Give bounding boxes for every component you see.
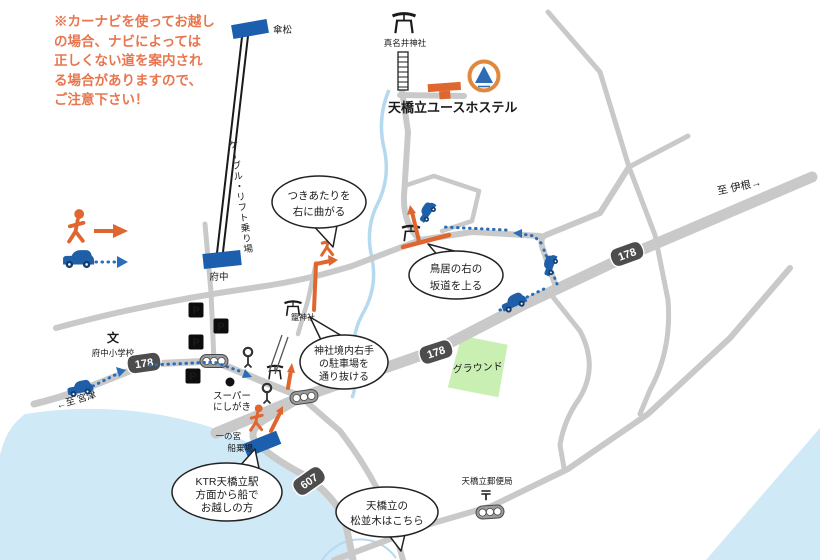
supermarket-label-2: にしがき [213, 401, 251, 413]
hostel-label: 天橋立ユースホステル [388, 100, 517, 115]
to-ine-label: 至 伊根→ [716, 176, 763, 198]
pier-label-2: 船乗場 [227, 443, 253, 453]
road-ne-stub [629, 136, 688, 167]
road-ne-branch [629, 167, 669, 414]
road-top-north [548, 12, 629, 167]
bubble-turn-right-line2: 右に曲がる [293, 205, 346, 218]
bubble-shrine-parking-line3: 通り抜ける [319, 370, 369, 383]
bubble-ktr-line3: お越しの方 [201, 501, 254, 514]
map-canvas: P 178 グラウンド [0, 0, 820, 560]
bubble-slope-line2: 坂道を上る [430, 279, 483, 292]
bubble-ktr-line1: KTR天橋立駅 [196, 475, 259, 488]
note-line-1: ※カーナビを使ってお越し [54, 12, 270, 32]
school: 文 府中小学校 [92, 330, 135, 358]
note-line-4: る場合がありますので、 [54, 71, 270, 91]
kasamatsu-label: 傘松 [273, 24, 293, 36]
note-line-5: ご注意下さい！ [54, 90, 270, 110]
bubble-shrine-parking-line2: の駐車場を [319, 357, 369, 370]
bubble-shrine-parking-line1: 神社境内右手 [314, 344, 374, 357]
water-bay [0, 409, 820, 560]
shrine-approach-path [269, 335, 288, 374]
post-office-symbol: 〒 [479, 488, 492, 503]
road-hostel-spur [400, 95, 464, 96]
pier-label-1: 一の宮 [215, 431, 241, 441]
sports-ground: グラウンド [434, 323, 522, 411]
note-line-2: の場合、ナビによっては [54, 32, 270, 52]
bubble-pine-line2: 松並木はこちら [350, 514, 424, 527]
road-ground-side [549, 292, 589, 468]
bubble-turn-right-line1: つきあたりを [288, 190, 351, 202]
bubble-slope-line1: 鳥居の右の [430, 262, 483, 275]
manai-shrine: 真名井神社 [384, 14, 427, 90]
bubble-slope: 鳥居の右の 坂道を上る [409, 244, 503, 299]
bubble-pine-line1: 天橋立の [366, 499, 408, 512]
post-office-label: 天橋立郵便局 [461, 476, 512, 486]
bubble-turn-right: つきあたりを 右に曲がる [272, 176, 366, 247]
legend [63, 209, 128, 268]
stone-steps-icon [398, 52, 408, 90]
supermarket: スーパー にしがき [213, 378, 251, 414]
note-line-3: 正しくない道を案内され [54, 51, 270, 71]
manai-shrine-label: 真名井神社 [384, 38, 427, 48]
supermarket-dot [226, 378, 235, 387]
school-label: 府中小学校 [92, 348, 135, 358]
road-north-connector [541, 167, 629, 287]
bubble-shrine-parking: 神社境内右手 の駐車場を 通り抜ける [300, 317, 388, 389]
supermarket-label-1: スーパー [213, 391, 251, 402]
water-corner [706, 428, 820, 560]
bubble-ktr-line2: 方面から船で [196, 488, 259, 501]
fuchu-label: 府中 [209, 271, 228, 283]
car-navi-warning-note: ※カーナビを使ってお越し の場合、ナビによっては 正しくない道を案内され る場合… [54, 12, 270, 110]
school-map-symbol: 文 [107, 330, 120, 345]
